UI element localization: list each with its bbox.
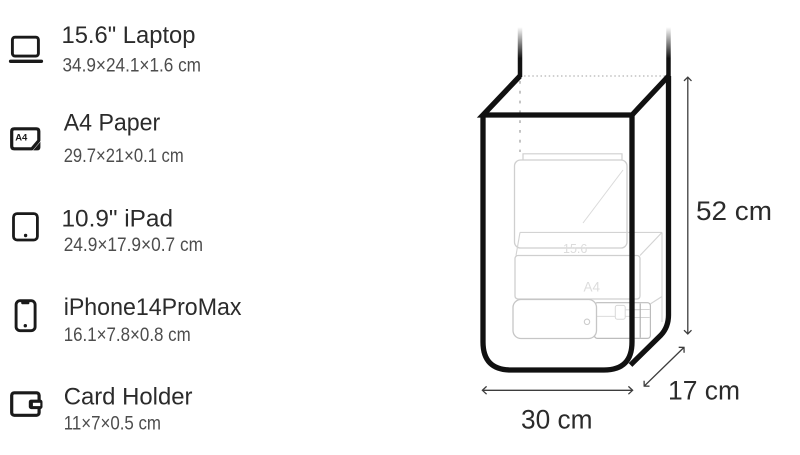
svg-text:A4: A4 bbox=[584, 280, 601, 295]
svg-text:16.1×7.8×0.8 cm: 16.1×7.8×0.8 cm bbox=[64, 325, 191, 346]
svg-text:10.9" iPad: 10.9" iPad bbox=[62, 206, 174, 233]
svg-text:Card Holder: Card Holder bbox=[64, 383, 193, 410]
svg-text:30 cm: 30 cm bbox=[521, 405, 593, 435]
svg-text:15.6: 15.6 bbox=[563, 242, 587, 256]
svg-text:34.9×24.1×1.6 cm: 34.9×24.1×1.6 cm bbox=[63, 55, 202, 76]
svg-text:15.6" Laptop: 15.6" Laptop bbox=[62, 22, 196, 49]
svg-text:24.9×17.9×0.7 cm: 24.9×17.9×0.7 cm bbox=[64, 235, 203, 256]
svg-text:A4 Paper: A4 Paper bbox=[64, 110, 161, 137]
svg-text:iPhone14ProMax: iPhone14ProMax bbox=[64, 294, 242, 321]
svg-text:A4: A4 bbox=[15, 132, 28, 143]
svg-text:29.7×21×0.1 cm: 29.7×21×0.1 cm bbox=[64, 146, 184, 167]
svg-text:11×7×0.5 cm: 11×7×0.5 cm bbox=[64, 413, 161, 434]
svg-text:52 cm: 52 cm bbox=[696, 196, 772, 226]
svg-text:17 cm: 17 cm bbox=[668, 376, 740, 406]
